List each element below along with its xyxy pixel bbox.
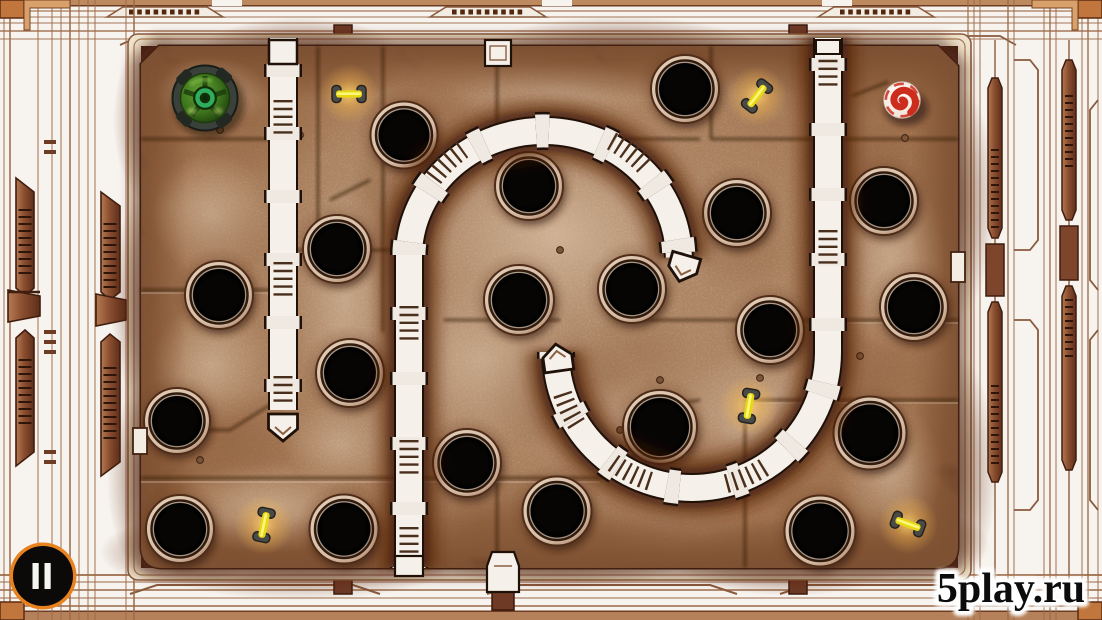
svg-text:5play.ru: 5play.ru — [937, 566, 1085, 612]
